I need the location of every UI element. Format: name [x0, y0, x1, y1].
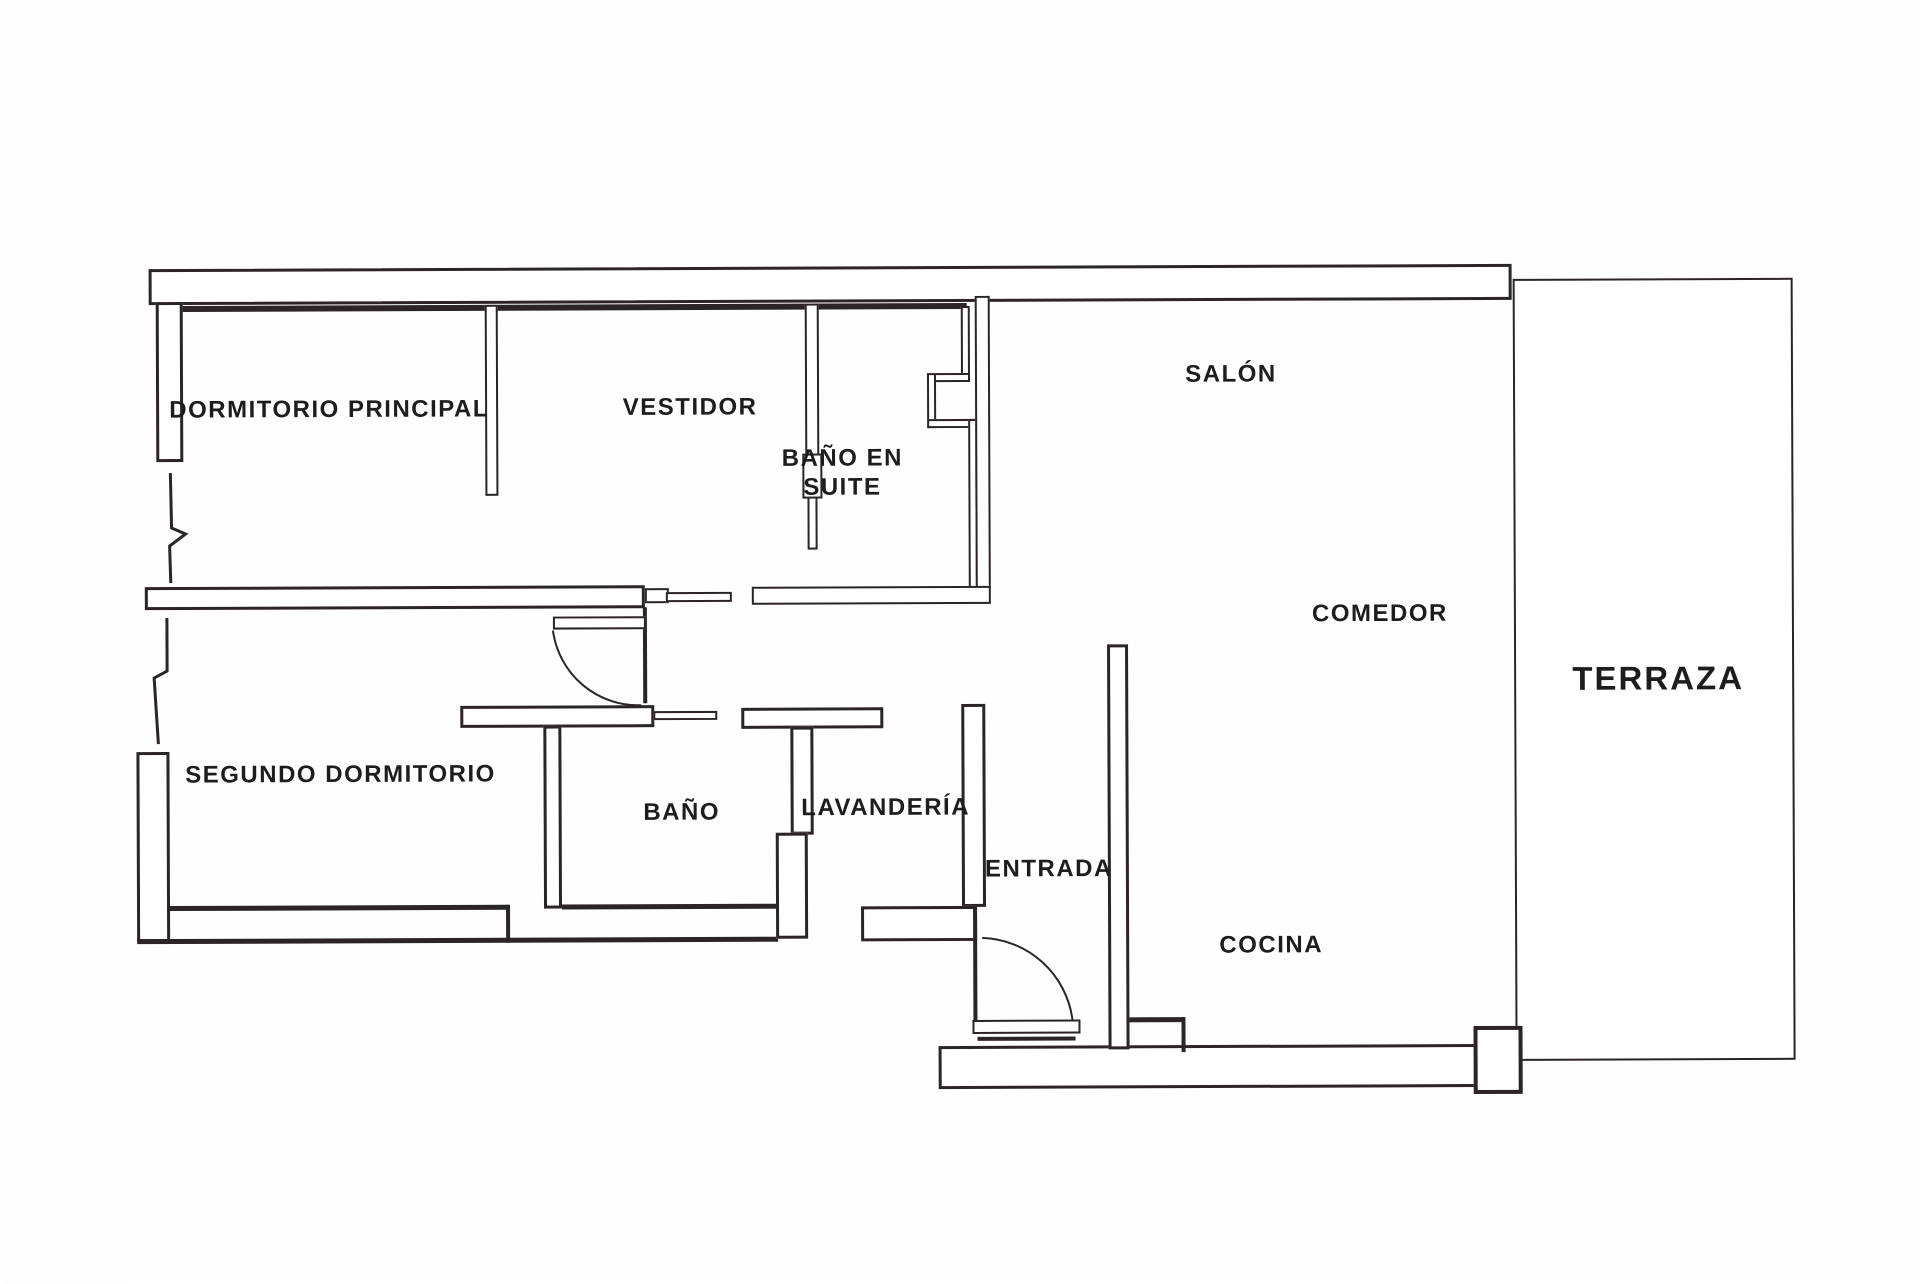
room-label-vestidor: VESTIDOR — [623, 393, 758, 422]
room-label-comedor: COMEDOR — [1312, 600, 1448, 629]
door-swing-arc-entrada — [982, 938, 1072, 1020]
room-label-dormitorio-principal: DORMITORIO PRINCIPAL — [169, 395, 489, 425]
room-label-terraza: TERRAZA — [1572, 658, 1744, 698]
floor-plan: DORMITORIO PRINCIPAL VESTIDOR BAÑO EN SU… — [0, 0, 1920, 1284]
break-line-upper-icon — [169, 473, 185, 583]
break-line-lower-icon — [154, 618, 167, 744]
plan-curves — [0, 0, 1920, 1284]
room-label-salon: SALÓN — [1185, 360, 1277, 389]
room-label-entrada: ENTRADA — [985, 855, 1113, 884]
room-label-cocina: COCINA — [1219, 931, 1323, 960]
door-swing-arc-middle — [553, 630, 641, 705]
room-label-segundo-dormitorio: SEGUNDO DORMITORIO — [185, 760, 496, 790]
room-label-bano: BAÑO — [643, 799, 720, 828]
room-label-bano-en-suite: BAÑO EN SUITE — [777, 444, 907, 502]
room-label-lavanderia: LAVANDERÍA — [801, 794, 970, 823]
